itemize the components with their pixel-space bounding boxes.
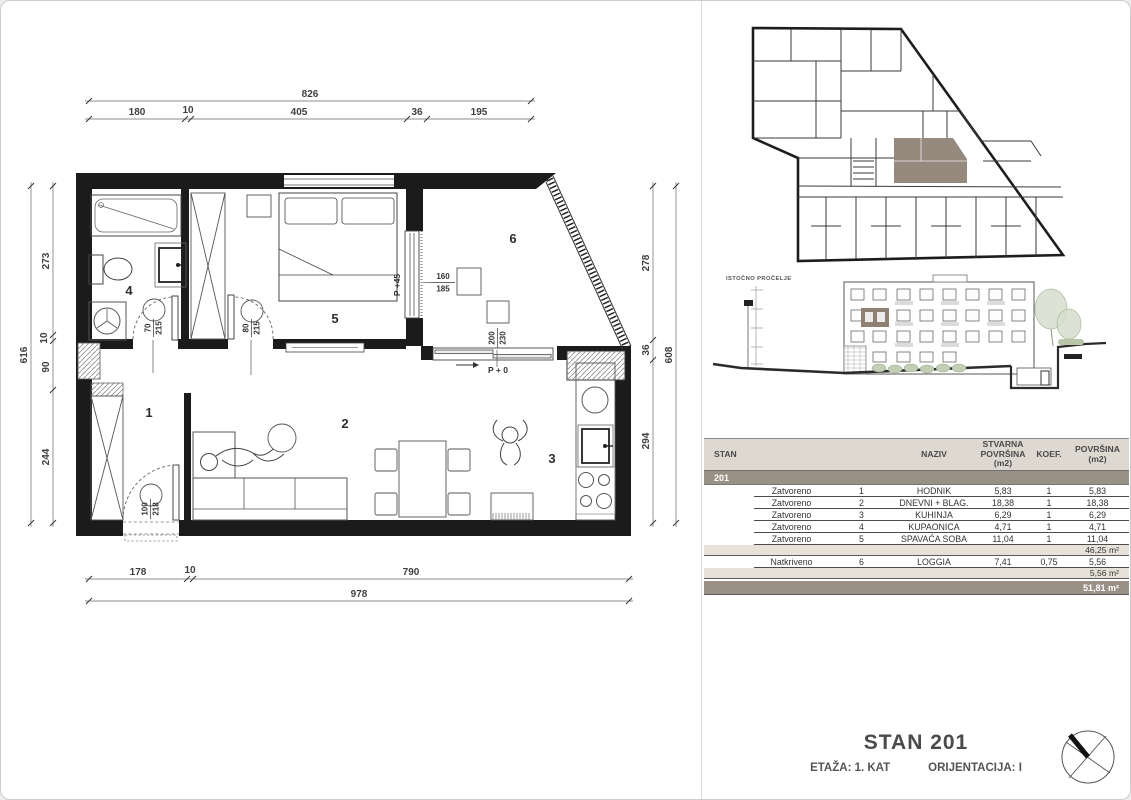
svg-text:P +45: P +45 [392,274,402,297]
dimension-bottom: 178 10 790 978 [85,565,633,604]
table-row: Natkriveno6 LOGGIA7,41 0,755,56 [704,556,1129,568]
stove [579,473,612,509]
room-number-bedroom: 5 [331,311,338,326]
table-row: Zatvoreno5 SPAVAĆA SOBA11,04 111,04 [704,533,1129,545]
svg-text:790: 790 [403,567,420,578]
svg-text:36: 36 [411,107,423,118]
svg-text:10: 10 [182,105,194,116]
table-row: Zatvoreno2 DNEVNI + BLAG.18,38 118,38 [704,497,1129,509]
svg-text:200: 200 [488,331,497,345]
svg-text:10: 10 [39,332,50,344]
svg-text:218: 218 [152,502,161,516]
hall-wardrobe [91,383,123,520]
header-naziv: NAZIV [894,450,974,460]
bathroom-door: 70 215 [133,296,178,373]
kitchen-island [491,493,533,520]
floor-plan-drawing: 70 215 80 215 100 [1,1,701,799]
svg-text:978: 978 [351,589,368,600]
facade [844,275,1034,374]
level-marks [751,286,763,366]
svg-text:273: 273 [41,252,52,269]
level-label-loggia: P +45 [392,274,402,297]
wall-shaft [78,343,100,379]
bedroom-window [284,175,394,187]
orientation-label: ORIJENTACIJA: I [928,762,1022,774]
table-row: Zatvoreno1 HODNIK5,83 15,83 [704,485,1129,497]
coffee-table [268,424,296,452]
subtotal-covered: 5,56 m² [704,568,1129,579]
svg-text:230: 230 [499,331,508,345]
highlighted-unit-window [861,308,889,327]
table-row: Zatvoreno4 KUPAONICA4,71 14,71 [704,521,1129,533]
total-area: 51,81 m² [704,581,1129,595]
bedroom-wardrobe [191,193,225,339]
room-number-kitchen: 3 [548,451,555,466]
level-label-terrace: P + 0 [488,365,508,375]
table-row: Zatvoreno3 KUHINJA6,29 16,29 [704,509,1129,521]
svg-text:36: 36 [641,344,652,356]
header-stvarna: STVARNA POVRŠINA (m2) [974,440,1032,469]
tv-sideboard [286,343,364,352]
svg-text:244: 244 [41,448,52,465]
svg-text:195: 195 [471,107,488,118]
svg-text:215: 215 [253,321,262,335]
svg-text:160: 160 [436,272,450,281]
bedroom-door: 80 215 [228,295,273,375]
floor-label: ETAŽA: 1. KAT [810,762,890,774]
building-overview-plan [701,1,1131,271]
svg-text:80: 80 [242,323,251,332]
dining-set [375,441,470,517]
room-number-hall: 1 [145,405,152,420]
north-compass-icon [1051,719,1125,793]
bathroom-sink [155,243,186,287]
room-number-bath: 4 [125,283,133,298]
kitchen-basin [578,425,613,467]
dimension-top: 826 180 10 405 36 195 [85,89,535,122]
subtotal-closed: 46,25 m² [704,545,1129,556]
svg-text:608: 608 [664,346,675,363]
svg-text:185: 185 [436,285,450,294]
bathtub [91,195,181,236]
toilet [89,255,132,284]
svg-text:405: 405 [291,107,308,118]
area-table: STAN NAZIV STVARNA POVRŠINA (m2) KOEF. P… [704,438,1129,595]
plan-sheet-page: 70 215 80 215 100 [0,0,1131,800]
svg-text:278: 278 [641,254,652,271]
svg-text:100: 100 [141,502,150,516]
loggia-railing [546,176,631,352]
svg-text:294: 294 [641,432,652,449]
loggia-window [405,231,422,318]
svg-text:180: 180 [129,107,146,118]
svg-text:826: 826 [302,89,319,100]
bed [279,193,397,301]
svg-text:178: 178 [130,567,147,578]
room-number-living: 2 [341,416,348,431]
unit-band: 201 [704,471,1129,485]
east-elevation-drawing: ISTOČNO PROČELJE [701,264,1131,436]
elevation-label: ISTOČNO PROČELJE [726,275,792,282]
svg-text:616: 616 [19,346,30,363]
svg-text:10: 10 [184,565,196,576]
header-povrsina: POVRŠINA (m2) [1066,445,1129,464]
dimension-right: 278 36 294 608 [641,182,679,527]
room-number-loggia: 6 [509,231,516,246]
svg-text:70: 70 [144,323,153,332]
table-header-row: STAN NAZIV STVARNA POVRŠINA (m2) KOEF. P… [704,438,1129,471]
page-title: STAN 201 [741,731,1091,755]
title-block: STAN 201 ETAŽA: 1. KAT ORIJENTACIJA: I [741,731,1091,774]
header-koef: KOEF. [1032,450,1066,460]
washing-machine [89,302,126,340]
standing-person [493,420,527,465]
nightstand [247,195,271,217]
kitchen-sink [582,387,608,413]
dimension-left: 616 273 10 90 244 [19,182,56,527]
loggia-window-label: 160 185 [423,268,481,295]
header-stan: STAN [704,450,754,460]
svg-text:90: 90 [41,361,52,373]
street-lamp [744,300,753,369]
highlighted-unit-201 [894,138,967,183]
svg-text:215: 215 [155,321,164,335]
entry-door: 100 218 [123,465,179,541]
